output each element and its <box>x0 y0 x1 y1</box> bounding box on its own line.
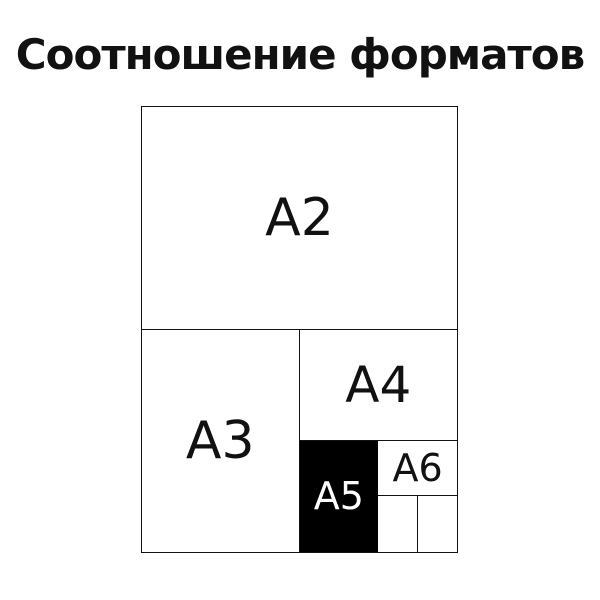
a6-stack: A6 <box>378 441 457 552</box>
format-label-a3: A3 <box>186 411 255 471</box>
format-cell-a2: A2 <box>142 107 457 330</box>
bottom-row: A3 A4 A5 A6 <box>142 330 457 553</box>
format-cell-a4: A4 <box>300 330 458 441</box>
a2-row: A2 <box>142 107 457 330</box>
format-label-a2: A2 <box>265 188 334 248</box>
paper-formats-diagram: A2 A3 A4 A5 A6 <box>141 106 458 553</box>
format-label-a5: A5 <box>314 474 364 518</box>
format-label-a4: A4 <box>345 356 411 414</box>
page: Соотношение форматов A2 A3 A4 A5 <box>0 0 600 600</box>
page-title: Соотношение форматов <box>0 30 600 79</box>
format-cell-a3: A3 <box>142 330 300 553</box>
format-label-a6: A6 <box>393 446 443 490</box>
subcell-left <box>378 496 417 552</box>
subcell-right <box>418 496 457 552</box>
format-cell-a5-highlighted: A5 <box>300 441 379 552</box>
unlabeled-subcells <box>378 496 457 552</box>
bottom-right-quadrant: A5 A6 <box>300 441 458 552</box>
format-cell-a6: A6 <box>378 441 457 497</box>
right-column: A4 A5 A6 <box>300 330 458 553</box>
